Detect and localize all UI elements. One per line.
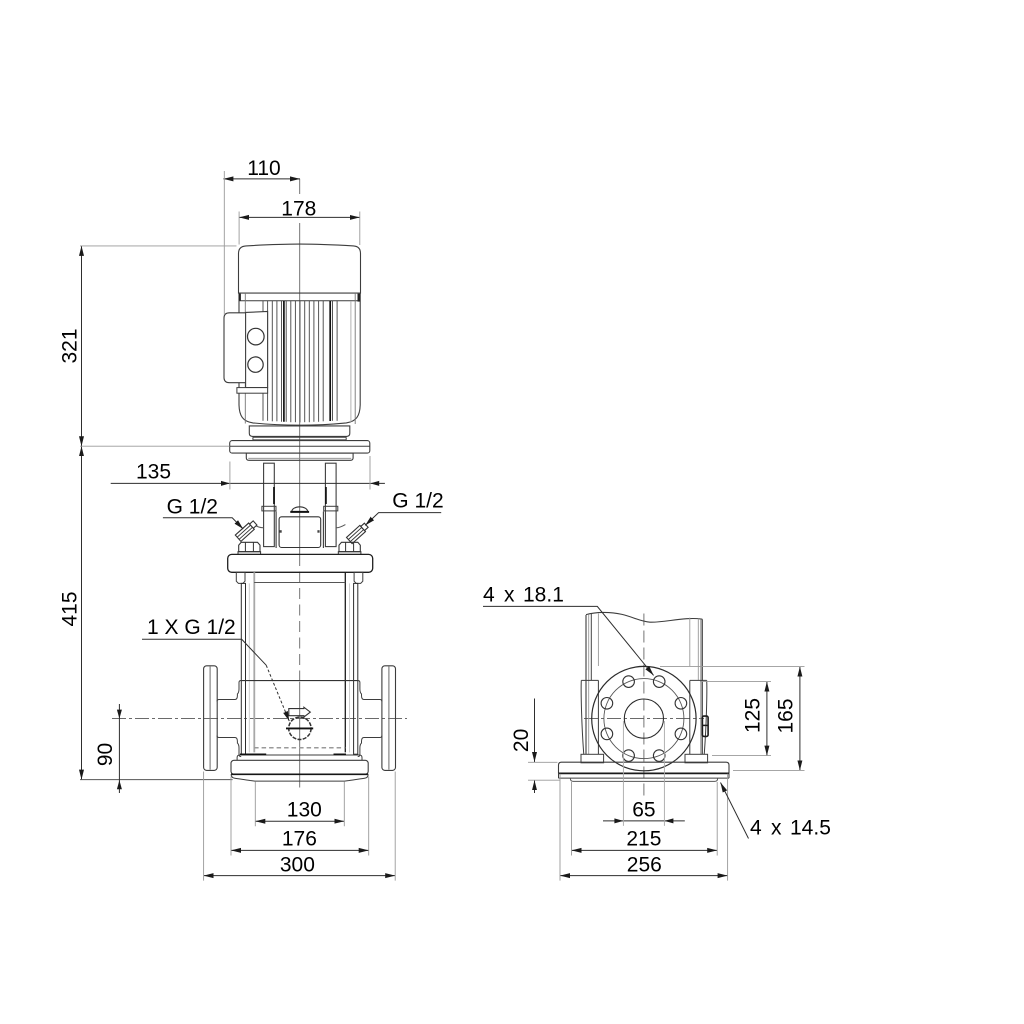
svg-text:14.5: 14.5 bbox=[790, 817, 831, 840]
svg-text:130: 130 bbox=[287, 799, 322, 822]
svg-text:x: x bbox=[504, 584, 515, 607]
svg-text:G 1/2: G 1/2 bbox=[167, 496, 218, 519]
svg-text:215: 215 bbox=[626, 828, 661, 851]
svg-text:256: 256 bbox=[627, 854, 662, 877]
svg-text:G 1/2: G 1/2 bbox=[392, 490, 443, 513]
svg-text:135: 135 bbox=[136, 460, 171, 483]
svg-text:4: 4 bbox=[483, 584, 495, 607]
svg-text:65: 65 bbox=[632, 798, 655, 821]
svg-text:x: x bbox=[771, 817, 782, 840]
svg-text:20: 20 bbox=[510, 729, 533, 752]
svg-text:18.1: 18.1 bbox=[523, 584, 564, 607]
svg-text:165: 165 bbox=[775, 698, 798, 733]
svg-text:300: 300 bbox=[280, 854, 315, 877]
svg-text:176: 176 bbox=[282, 828, 317, 851]
svg-text:125: 125 bbox=[742, 698, 765, 733]
svg-text:90: 90 bbox=[94, 743, 117, 766]
svg-text:415: 415 bbox=[59, 591, 82, 626]
svg-text:4: 4 bbox=[750, 817, 762, 840]
svg-text:178: 178 bbox=[281, 198, 316, 221]
svg-text:321: 321 bbox=[59, 328, 82, 363]
svg-text:1 X G 1/2: 1 X G 1/2 bbox=[147, 616, 236, 639]
svg-text:110: 110 bbox=[247, 157, 280, 180]
